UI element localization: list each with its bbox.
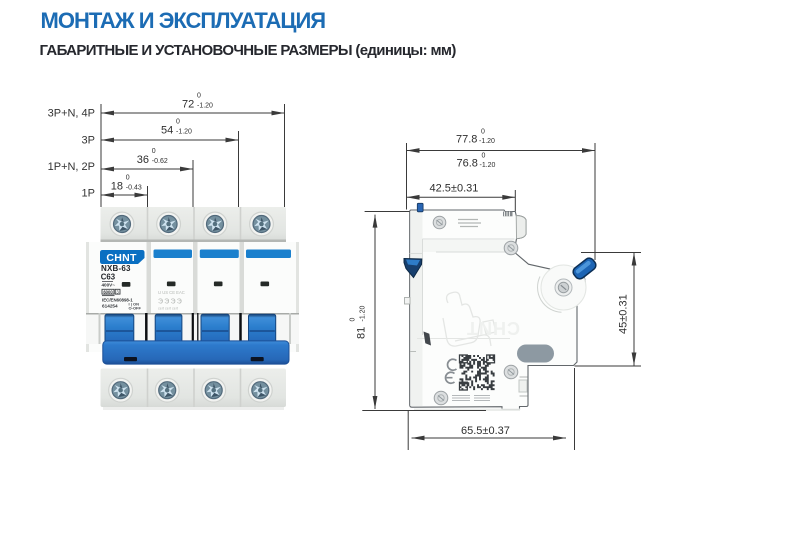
svg-text:U US CE EAC: U US CE EAC <box>158 290 185 295</box>
svg-text:-0.62: -0.62 <box>152 158 168 165</box>
svg-text:1P: 1P <box>82 188 95 200</box>
svg-text:0: 0 <box>176 119 180 126</box>
svg-text:45±0.31: 45±0.31 <box>618 294 630 334</box>
svg-text:614254: 614254 <box>102 303 118 308</box>
svg-text:81: 81 <box>356 327 368 339</box>
svg-text:ЭЭЭЭ: ЭЭЭЭ <box>158 299 183 306</box>
svg-text:-0.43: -0.43 <box>126 185 142 192</box>
svg-text:36: 36 <box>137 154 149 166</box>
svg-text:42.5±0.31: 42.5±0.31 <box>430 183 479 195</box>
svg-text:-1.20: -1.20 <box>480 162 496 169</box>
svg-text:3P: 3P <box>82 135 95 147</box>
svg-text:0: 0 <box>482 153 486 160</box>
svg-text:0: 0 <box>481 129 485 136</box>
svg-text:0: 0 <box>152 148 156 155</box>
svg-text:400V~: 400V~ <box>102 283 116 288</box>
svg-text:C63: C63 <box>101 273 116 282</box>
svg-text:CHNT: CHNT <box>466 318 520 338</box>
svg-text:-1.20: -1.20 <box>176 129 192 136</box>
svg-text:0: 0 <box>350 318 357 322</box>
svg-text:3P+N, 4P: 3P+N, 4P <box>48 108 95 120</box>
svg-text:1P+N, 2P: 1P+N, 2P <box>48 161 95 173</box>
svg-text:-1.20: -1.20 <box>197 103 213 110</box>
svg-text:0: 0 <box>197 93 201 100</box>
svg-text:72: 72 <box>182 99 194 111</box>
svg-text:CHNT: CHNT <box>106 252 137 264</box>
svg-text:76.8: 76.8 <box>457 158 478 170</box>
svg-text:54: 54 <box>161 125 173 137</box>
svg-text:6000: 6000 <box>103 289 113 294</box>
svg-text:cert cert cert: cert cert cert <box>158 307 178 311</box>
svg-text:65.5±0.37: 65.5±0.37 <box>461 425 510 437</box>
svg-text:77.8: 77.8 <box>456 134 477 146</box>
svg-text:-1.20: -1.20 <box>479 138 495 145</box>
svg-text:-1.20: -1.20 <box>360 305 367 321</box>
svg-text:18: 18 <box>111 181 123 193</box>
svg-text:0: 0 <box>126 175 130 182</box>
svg-text:O-OFF: O-OFF <box>129 306 142 311</box>
